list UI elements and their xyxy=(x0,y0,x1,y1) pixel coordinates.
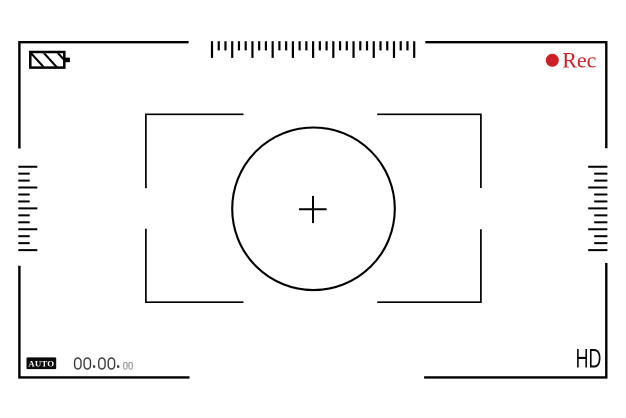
svg-text:Rec: Rec xyxy=(562,48,596,73)
svg-text:AUTO: AUTO xyxy=(28,358,54,368)
svg-text:HD: HD xyxy=(576,343,602,374)
